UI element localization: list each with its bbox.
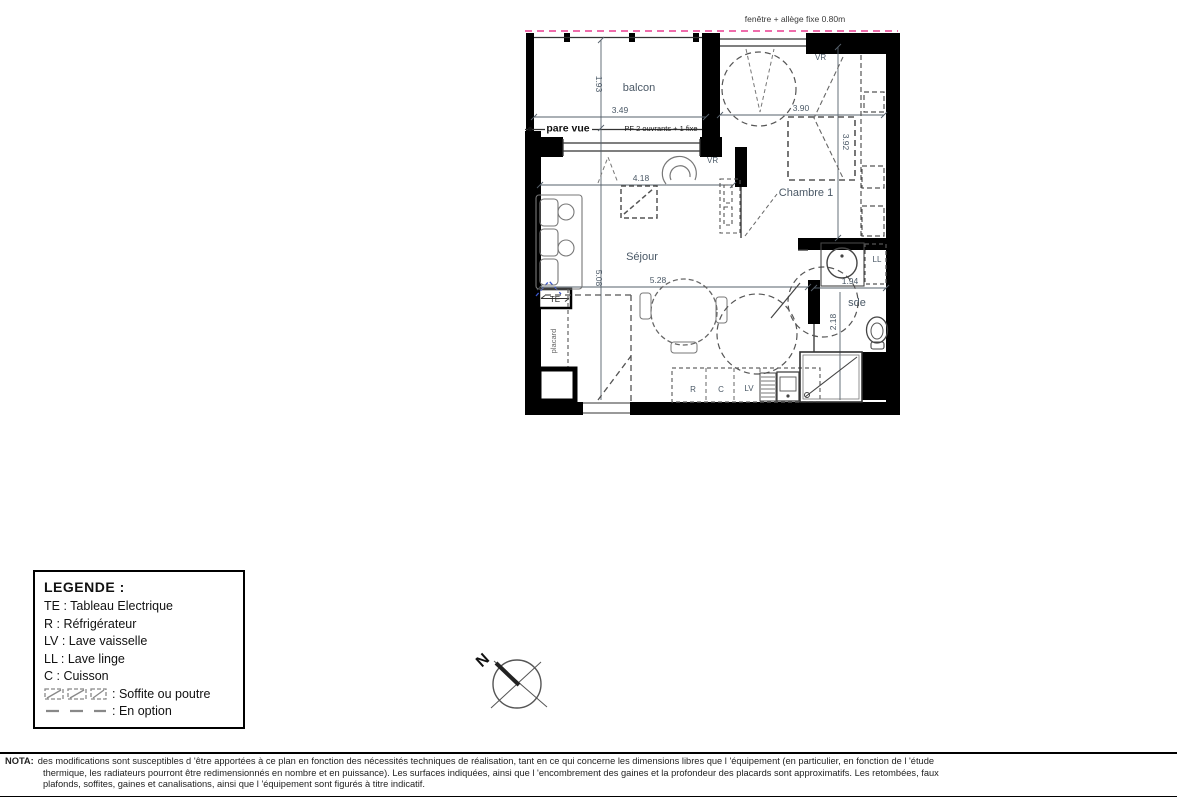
te-label: TE: [550, 295, 560, 304]
hall-soffite: [720, 179, 740, 233]
nota-line-2: thermique, les radiateurs pourront être …: [5, 768, 1171, 780]
washer-label: LL: [873, 255, 882, 264]
compass: N: [473, 650, 547, 708]
placard-label: placard: [549, 329, 558, 354]
pf-window-label: PF 2 ouvrants + 1 fixe: [624, 124, 697, 133]
legend-item-te: TE : Tableau Electrique: [44, 598, 236, 616]
legend-item-soffite: : Soffite ou poutre: [44, 686, 236, 703]
sejour-soffite: [621, 186, 657, 218]
fenetre-allege-label: fenêtre + allège fixe 0.80m: [745, 14, 845, 24]
partitions-and-windows: [525, 38, 814, 414]
shower: [800, 352, 862, 402]
nota-line-1: NOTA:des modifications sont susceptibles…: [5, 756, 1171, 768]
legend-item-ll: LL : Lave linge: [44, 651, 236, 669]
fridge-label: R: [690, 385, 696, 394]
chambre-closet: [861, 55, 884, 237]
vr-label-chambre: VR: [815, 53, 826, 62]
armchair: [662, 156, 696, 184]
bed: [788, 57, 855, 180]
sofa: [536, 195, 582, 289]
electrical-panel: TE: [539, 289, 571, 308]
kitchen-sink: [777, 372, 799, 401]
entry-door-leaf: [598, 356, 631, 400]
soffite-symbol-icon: [44, 687, 110, 701]
option-symbol-icon: [44, 706, 110, 716]
window-swing-marks: [598, 49, 774, 183]
toilet: [867, 317, 888, 349]
dishwasher-label: LV: [744, 384, 754, 393]
dim-sejour-top: 4.18: [633, 173, 650, 183]
dim-balcon-width: 3.49: [612, 105, 629, 115]
dim-sejour-width: 5.28: [650, 275, 667, 285]
dim-sde-depth: 2.18: [828, 313, 838, 330]
legend-box: LEGENDE : TE : Tableau Electrique R : Ré…: [33, 570, 245, 729]
dim-sejour-depth: 5.08: [594, 270, 604, 287]
dining-table: [640, 279, 727, 353]
nota-line-3: plafonds, soffites, gaines et canalisati…: [5, 779, 1171, 791]
legend-option-label: : En option: [112, 703, 172, 720]
pare-vue-label: pare vue: [546, 123, 589, 135]
legend-item-option: : En option: [44, 703, 236, 720]
dim-chambre-depth: 3.92: [841, 134, 851, 151]
cooktop-label: C: [718, 385, 724, 394]
chambre-door-leaf: [745, 194, 777, 236]
legend-item-c: C : Cuisson: [44, 668, 236, 686]
page-bottom-rule: [0, 796, 1177, 797]
legend-item-lv: LV : Lave vaisselle: [44, 633, 236, 651]
nota-section: NOTA:des modifications sont susceptibles…: [0, 752, 1177, 791]
legend-soffite-label: : Soffite ou poutre: [112, 686, 210, 703]
north-label: N: [473, 650, 493, 670]
room-label-balcon: balcon: [623, 82, 655, 94]
legend-title: LEGENDE :: [44, 579, 236, 595]
walls: [525, 33, 900, 415]
dim-chambre-width: 3.90: [793, 103, 810, 113]
room-label-sejour: Séjour: [626, 251, 658, 263]
duct-box: [539, 369, 575, 401]
sde-door-leaf: [771, 283, 800, 318]
room-label-chambre: Chambre 1: [779, 187, 833, 199]
dim-balcon-depth: 1.93: [594, 76, 604, 93]
room-label-sde: sde: [848, 297, 866, 309]
legend-item-r: R : Réfrigérateur: [44, 616, 236, 634]
pare-vue-marker: [528, 127, 532, 131]
nota-label: NOTA:: [5, 756, 34, 766]
vr-label-sejour: VR: [707, 156, 718, 165]
